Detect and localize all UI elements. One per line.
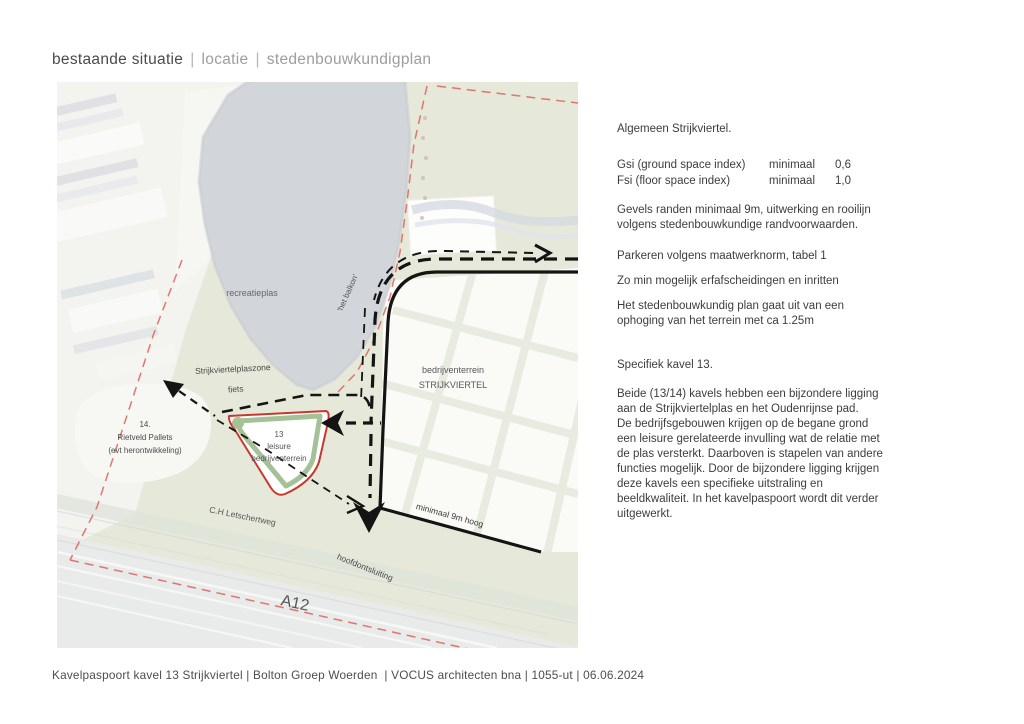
gsi-label: Gsi (ground space index) xyxy=(617,158,769,173)
table-row-fsi: Fsi (floor space index) minimaal 1,0 xyxy=(617,174,851,190)
title-separator: | xyxy=(248,51,266,68)
gsi-qualifier: minimaal xyxy=(769,158,835,173)
label-fiets: fiets xyxy=(228,383,244,394)
bedrijventerrein-blocks xyxy=(377,257,578,554)
site-plan-figure: recreatieplas 'het balkon' Strijkviertel… xyxy=(57,82,578,648)
fsi-label: Fsi (floor space index) xyxy=(617,174,769,189)
label-recreatieplas: recreatieplas xyxy=(226,288,278,298)
algemeen-heading: Algemeen Strijkviertel. xyxy=(617,122,731,137)
specifiek-heading: Specifiek kavel 13. xyxy=(617,358,713,373)
label-kavel13-number: 13 xyxy=(275,430,284,439)
label-bedrijventerrein: bedrijventerrein xyxy=(422,365,484,375)
site-plan-map: recreatieplas 'het balkon' Strijkviertel… xyxy=(57,82,578,648)
label-kavel14-name: Rietveld Pallets xyxy=(117,433,172,442)
label-kavel13-leisure: leisure xyxy=(267,442,291,451)
para-gevels: Gevels randen minimaal 9m, uitwerking en… xyxy=(617,203,871,233)
fsi-value: 1,0 xyxy=(835,174,851,189)
label-kavel14-number: 14. xyxy=(139,420,150,429)
document-footer: Kavelpaspoort kavel 13 Strijkviertel | B… xyxy=(52,668,644,682)
table-row-gsi: Gsi (ground space index) minimaal 0,6 xyxy=(617,158,851,174)
index-table: Gsi (ground space index) minimaal 0,6 Fs… xyxy=(617,158,851,190)
para-parkeren: Parkeren volgens maatwerknorm, tabel 1 xyxy=(617,249,827,264)
title-segment-locatie: locatie xyxy=(202,51,249,68)
title-segment-bestaande-situatie: bestaande situatie xyxy=(52,51,183,68)
title-separator: | xyxy=(183,51,201,68)
para-specifiek-kavel13: Beide (13/14) kavels hebben een bijzonde… xyxy=(617,387,883,522)
para-erfafscheidingen: Zo min mogelijk erfafscheidingen en inri… xyxy=(617,274,839,289)
label-kavel14-note: (evt herontwikkeling) xyxy=(108,446,182,455)
label-kavel13-type: bedrijventerrein xyxy=(251,454,306,463)
page-title: bestaande situatie|locatie|stedenbouwkun… xyxy=(52,51,431,69)
kavelpaspoort-page: bestaande situatie|locatie|stedenbouwkun… xyxy=(0,0,1024,724)
title-segment-stedenbouwkundigplan: stedenbouwkundigplan xyxy=(267,51,432,68)
label-strijkviertel: STRIJKVIERTEL xyxy=(419,380,487,390)
para-ophoging: Het stedenbouwkundig plan gaat uit van e… xyxy=(617,299,844,329)
gsi-value: 0,6 xyxy=(835,158,851,173)
fsi-qualifier: minimaal xyxy=(769,174,835,189)
